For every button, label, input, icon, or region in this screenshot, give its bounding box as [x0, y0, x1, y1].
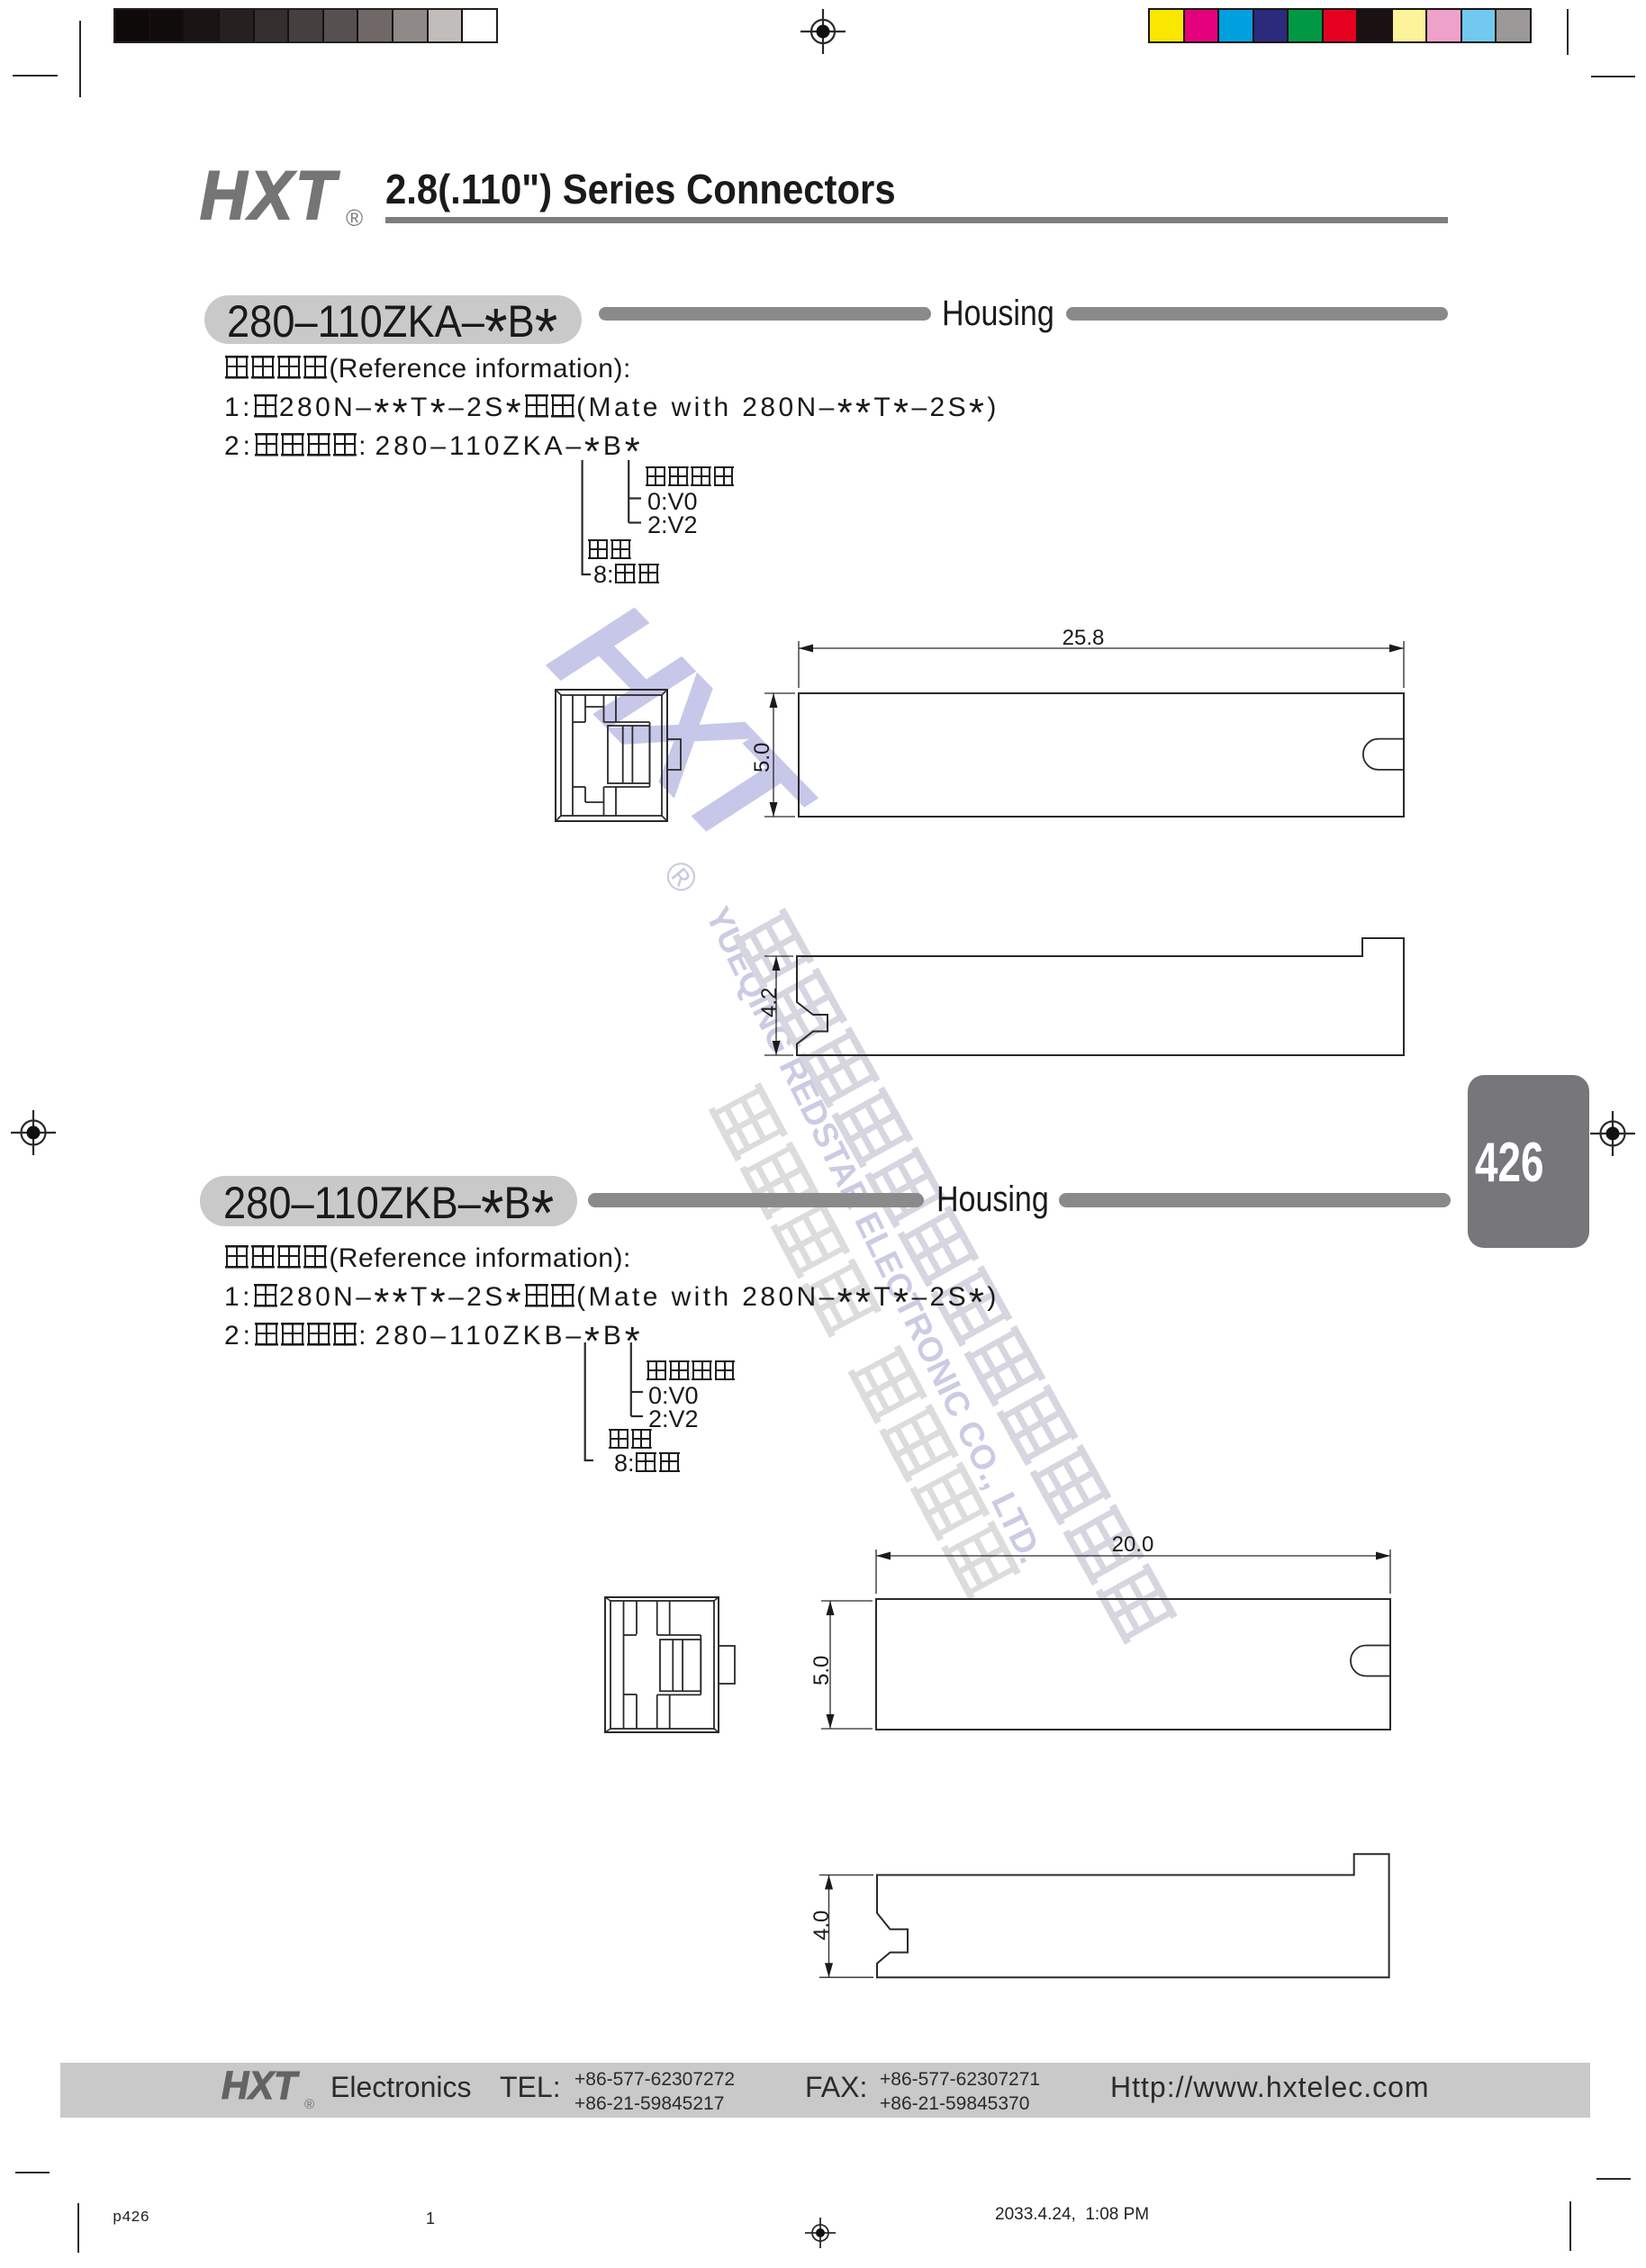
svg-text:25.8: 25.8: [1063, 626, 1105, 650]
svg-text:20.0: 20.0: [1112, 1532, 1154, 1557]
svg-text:5.0: 5.0: [809, 1656, 834, 1685]
svg-text:4.0: 4.0: [809, 1911, 834, 1940]
svg-text:4.2: 4.2: [757, 988, 782, 1017]
svg-text:5.0: 5.0: [750, 743, 774, 773]
